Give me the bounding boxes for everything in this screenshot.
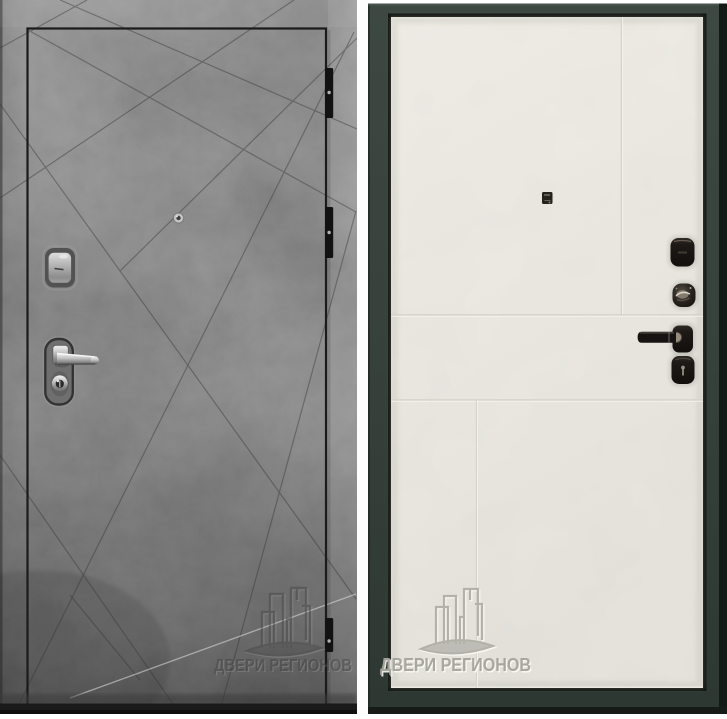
svg-text:ДВЕРИ РЕГИОНОВ: ДВЕРИ РЕГИОНОВ xyxy=(380,654,531,675)
svg-text:ДВЕРИ РЕГИОНОВ: ДВЕРИ РЕГИОНОВ xyxy=(214,655,352,675)
